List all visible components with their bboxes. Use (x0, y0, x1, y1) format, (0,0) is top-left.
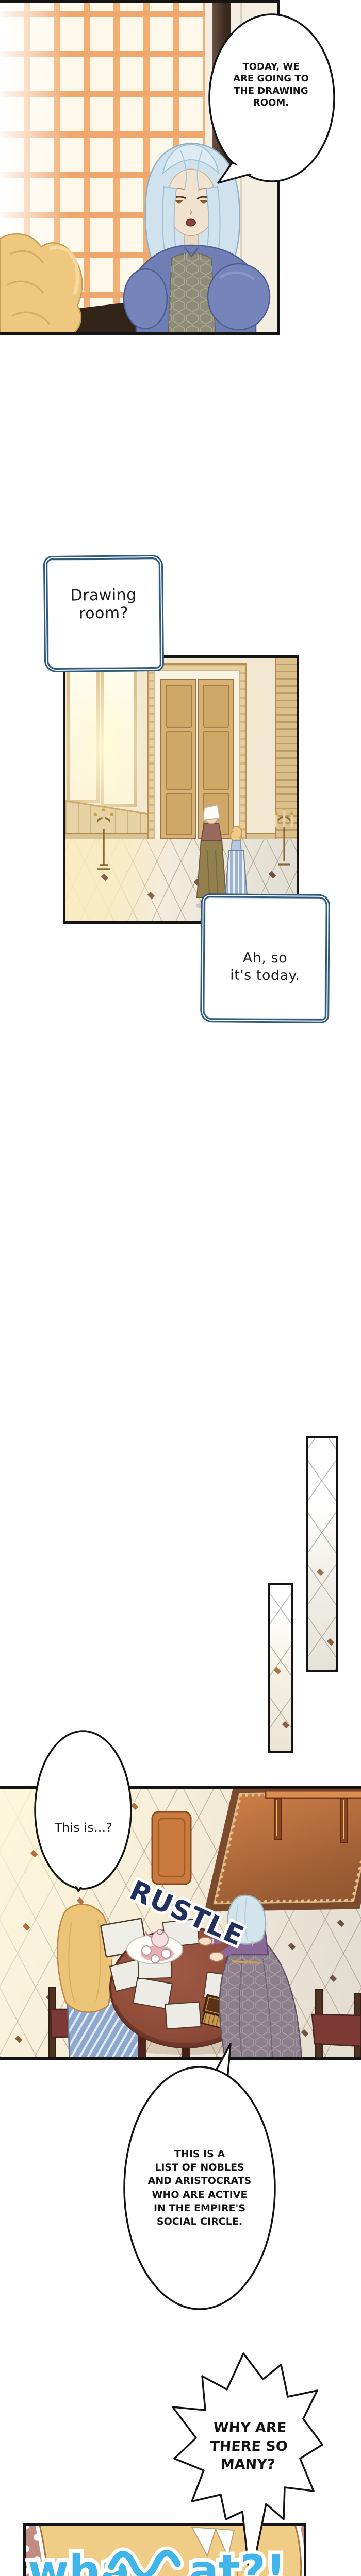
candelabra (92, 803, 115, 875)
door-panel (166, 793, 192, 835)
bubble-line: MANY? (202, 2455, 293, 2474)
bubble-line: SOCIAL CIRCLE. (130, 2215, 269, 2228)
caption-line: room? (48, 604, 159, 623)
blonde-girl-hair (0, 218, 88, 335)
bubble-line: WHO ARE ACTIVE (130, 2188, 269, 2201)
candelabra (274, 803, 294, 870)
bubble-line: LIST OF NOBLES (130, 2161, 269, 2174)
door-panel (166, 731, 192, 790)
caption-drawing-room-text: Drawing room? (47, 586, 159, 623)
door-panel (166, 685, 192, 728)
chair (312, 1990, 361, 2060)
caption-ah-so-text: Ah, so it's today. (205, 949, 325, 985)
bubble-line: IN THE EMPIRE'S (130, 2201, 269, 2215)
speech-bubble-this-is (32, 1728, 135, 1893)
caption-line: it's today. (205, 967, 325, 985)
sfx-rustle: RUSTLE (124, 1866, 248, 1969)
caption-line: Drawing (47, 586, 159, 605)
floor-strip-panel (268, 1583, 293, 1753)
bubble-line: WHY ARE (204, 2419, 296, 2437)
svg-text:at?!: at?! (189, 2546, 286, 2576)
speech-bubble-list-text: THIS IS A LIST OF NOBLES AND ARISTOCRATS… (130, 2147, 269, 2228)
door-leaf-left (160, 679, 196, 839)
floor-strip-panel (306, 1436, 338, 1672)
door-panel (203, 731, 229, 790)
bubble-line: ARE GOING TO (210, 73, 332, 84)
caption-ah-so: Ah, so it's today. (203, 896, 327, 1021)
bubble-line: TODAY, WE (210, 61, 332, 73)
bubble-line: This is...? (37, 1821, 130, 1835)
comic-page: TODAY, WE ARE GOING TO THE DRAWING ROOM.… (0, 0, 361, 2576)
svg-text:RUSTLE: RUSTLE (125, 1875, 248, 1953)
bubble-line: THERE SO (203, 2437, 294, 2456)
bubble-line: AND ARISTOCRATS (130, 2174, 269, 2188)
shock-bubble-why-text: WHY ARE THERE SO MANY? (202, 2419, 296, 2474)
panel-corridor-scene (63, 655, 299, 924)
bubble-line: THE DRAWING (210, 85, 332, 97)
sfx-what: wha at?! (25, 2535, 303, 2576)
caption-line: Ah, so (205, 949, 325, 967)
bubble-line: THIS IS A (130, 2147, 269, 2161)
bubble-line: ROOM. (210, 97, 332, 109)
console-table (266, 1791, 361, 1842)
speech-bubble-today-text: TODAY, WE ARE GOING TO THE DRAWING ROOM. (210, 61, 332, 109)
door-panel (203, 685, 229, 728)
tile-lines (308, 1438, 336, 1670)
speech-bubble-this-is-text: This is...? (37, 1821, 130, 1835)
caption-drawing-room: Drawing room? (46, 557, 161, 670)
